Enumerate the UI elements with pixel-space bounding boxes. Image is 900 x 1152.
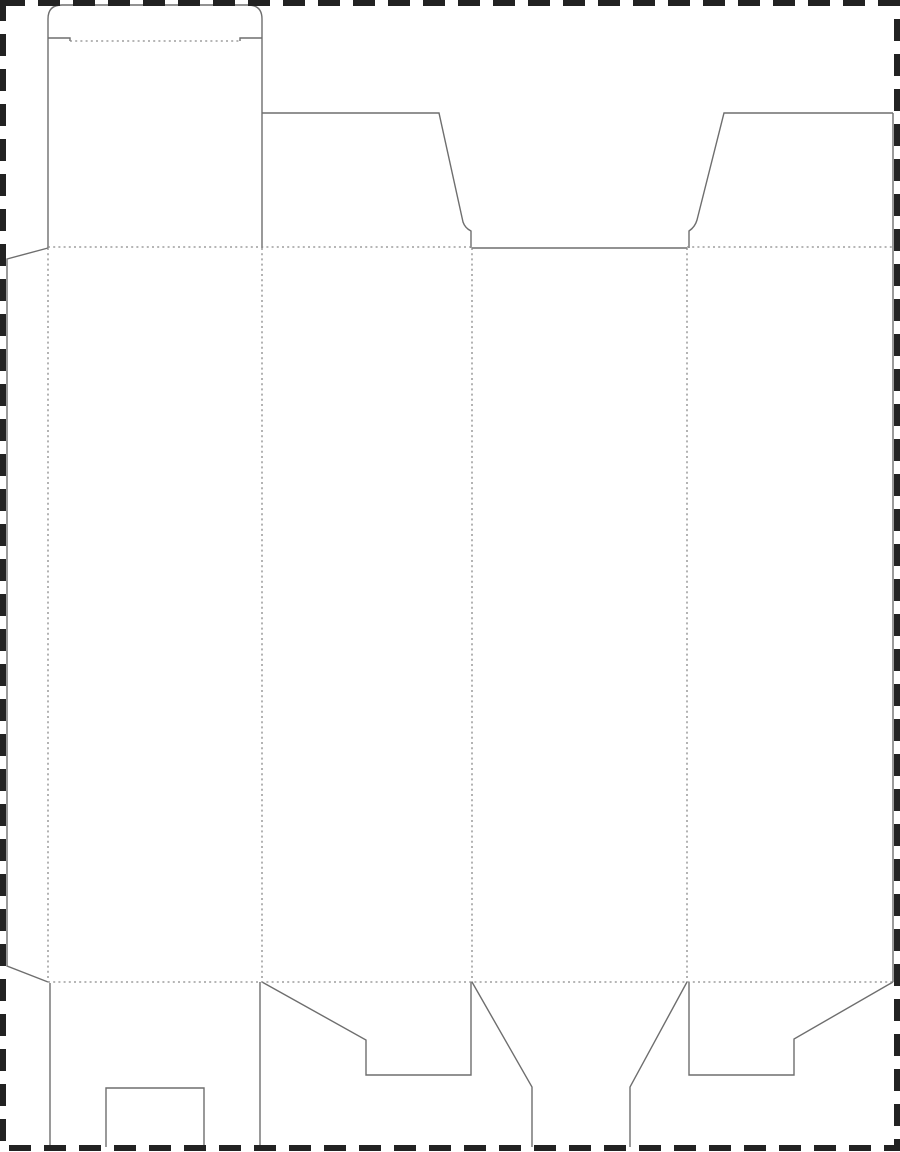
- dust-flap-left: [262, 113, 471, 248]
- side-bottom-flap-left: [262, 982, 471, 1075]
- tuck-shoulder-left: [48, 38, 70, 41]
- glue-flap-outline: [7, 248, 48, 982]
- dieline-page: [0, 0, 900, 1152]
- side-bottom-flap-right: [689, 982, 893, 1075]
- tuck-shoulder-right: [240, 38, 262, 41]
- front-bottom-tongue: [472, 982, 687, 1147]
- dieline-svg: [0, 0, 900, 1152]
- trim-border: [3, 3, 897, 1148]
- back-bottom-flap-notch: [106, 1088, 204, 1147]
- dust-flap-right: [689, 113, 893, 248]
- tuck-flap-outline: [48, 5, 262, 38]
